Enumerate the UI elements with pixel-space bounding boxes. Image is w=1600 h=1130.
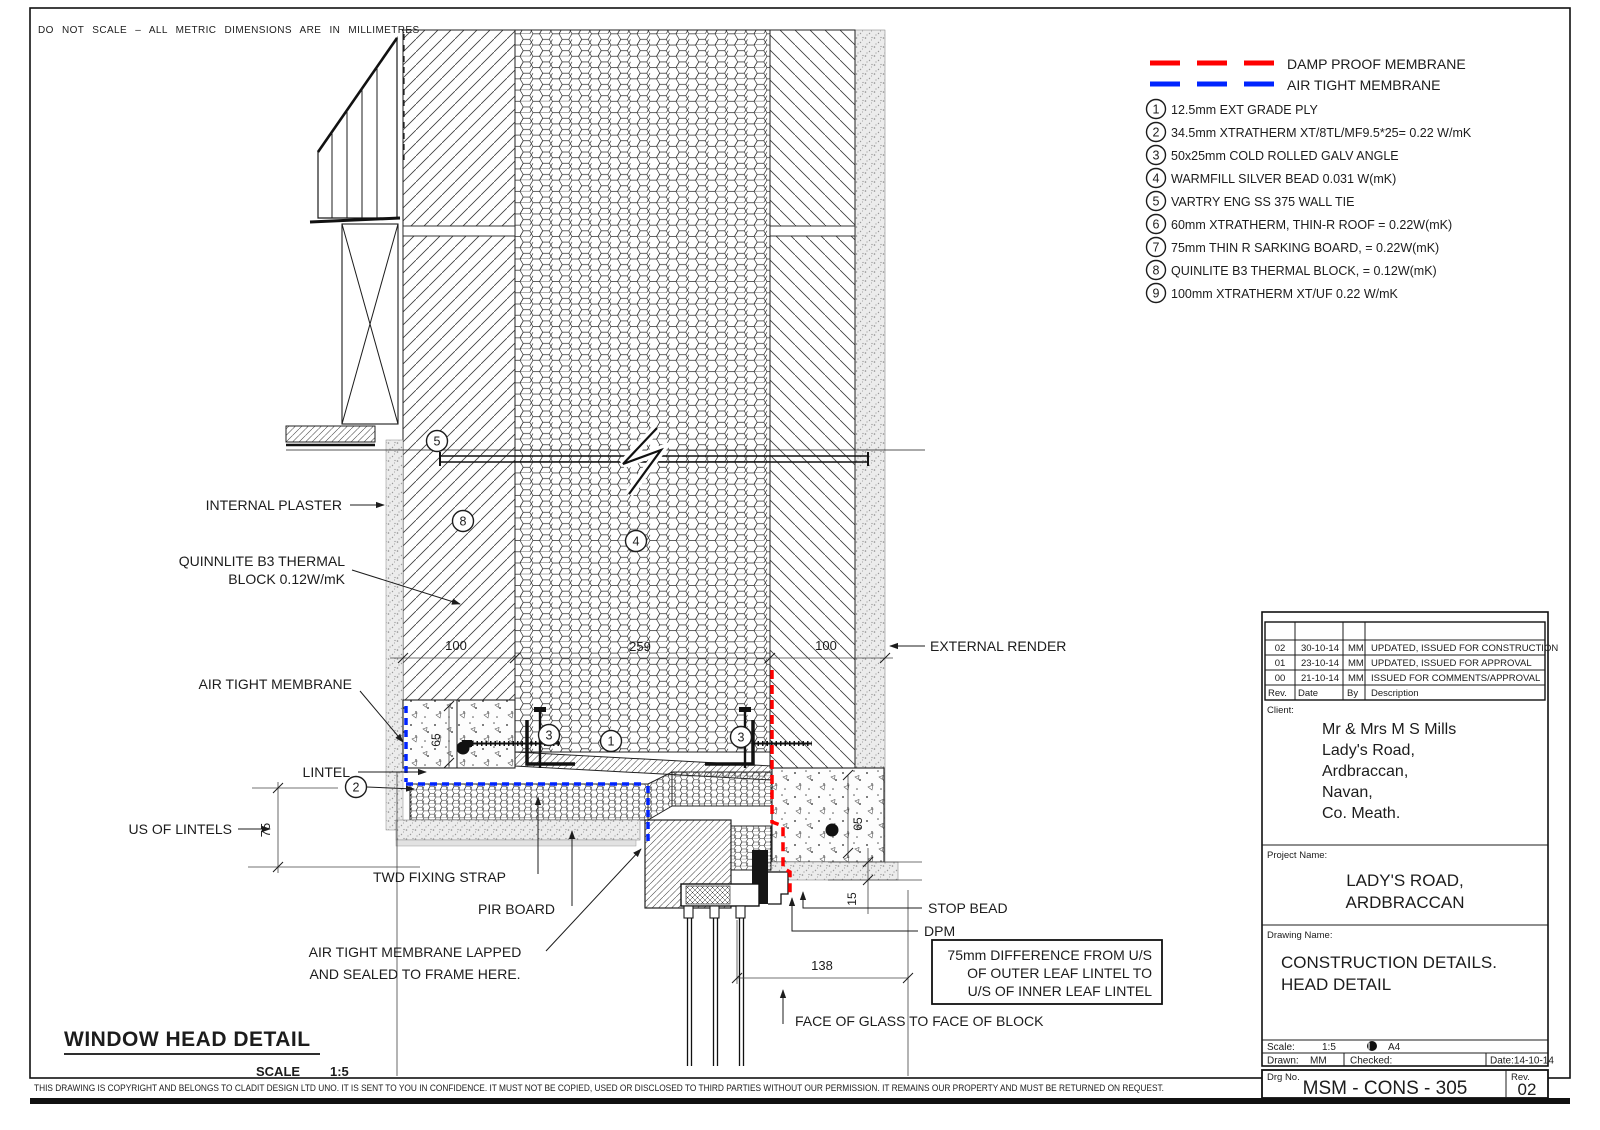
pir-board-strip [410, 784, 648, 820]
drawing-number-box: Drg No. MSM - CONS - 305 Rev. 02 [1262, 1070, 1548, 1099]
tb-scale-value: 1:5 [1322, 1042, 1336, 1053]
revision-table: 02 30-10-14 MM UPDATED, ISSUED FOR CONST… [1265, 622, 1558, 700]
svg-text:9: 9 [1153, 287, 1160, 301]
bolt-head [739, 707, 751, 712]
svg-text:MM: MM [1348, 658, 1364, 669]
note-item: 8 QUINLITE B3 THERMAL BLOCK, = 0.12W(mK) [1147, 261, 1437, 280]
pir-board-strip-outer [672, 772, 772, 806]
client-line: Co. Meath. [1322, 805, 1400, 822]
svg-text:21-10-14: 21-10-14 [1301, 673, 1339, 684]
drawing-name-label: Drawing Name: [1267, 930, 1332, 941]
client-line: Lady's Road, [1322, 742, 1415, 759]
svg-text:01: 01 [1275, 658, 1286, 669]
svg-text:4: 4 [633, 535, 640, 549]
title-block: 02 30-10-14 MM UPDATED, ISSUED FOR CONST… [1262, 612, 1558, 1099]
dim-cavity: 259 [629, 639, 651, 654]
inner-leaf-blockwork [403, 30, 515, 700]
svg-text:UPDATED, ISSUED FOR APPROVAL: UPDATED, ISSUED FOR APPROVAL [1371, 658, 1532, 669]
legend: DAMP PROOF MEMBRANE AIR TIGHT MEMBRANE [1150, 56, 1466, 93]
pir-step [648, 772, 672, 820]
svg-text:OF OUTER LEAF LINTEL TO: OF OUTER LEAF LINTEL TO [967, 965, 1152, 981]
svg-text:5: 5 [1153, 195, 1160, 209]
glazing-spacer [710, 906, 719, 918]
revision-row: 01 23-10-14 MM UPDATED, ISSUED FOR APPRO… [1275, 658, 1532, 669]
bolt-head [462, 740, 472, 747]
project-label: Project Name: [1267, 850, 1327, 861]
svg-text:8: 8 [460, 515, 467, 529]
dim-15: 15 [845, 892, 859, 906]
bolt-head [534, 707, 546, 712]
air-tight-membrane-label: AIR TIGHT MEMBRANE [198, 676, 352, 692]
svg-text:8: 8 [1153, 264, 1160, 278]
dim-75: 75 [258, 823, 273, 837]
svg-text:4: 4 [1153, 172, 1160, 186]
svg-text:23-10-14: 23-10-14 [1301, 658, 1339, 669]
svg-text:100mm XTRATHERM XT/UF 0.22 W/m: 100mm XTRATHERM XT/UF 0.22 W/mK [1171, 287, 1399, 301]
svg-text:00: 00 [1275, 673, 1286, 684]
dim-65-inner: 65 [429, 733, 443, 747]
triple-glazing [688, 918, 744, 1066]
svg-text:Description: Description [1371, 688, 1419, 699]
external-render-strip [855, 30, 885, 862]
date-value: Date:14-10-14 [1490, 1056, 1554, 1067]
rev-value: 02 [1518, 1080, 1537, 1099]
project-line: ARDBRACCAN [1345, 893, 1464, 912]
callout-5: 5 [427, 431, 448, 452]
ceiling-board [286, 426, 375, 442]
svg-text:75mm DIFFERENCE FROM U/S: 75mm DIFFERENCE FROM U/S [947, 947, 1152, 963]
glazing-spacer [684, 906, 693, 918]
drawing-name-line: HEAD DETAIL [1281, 975, 1391, 994]
stop-bead-label: STOP BEAD [928, 900, 1008, 916]
drawn-label: Drawn: [1267, 1056, 1299, 1067]
svg-text:By: By [1347, 688, 1358, 699]
skim-strip [396, 840, 636, 846]
pir-board-label: PIR BOARD [478, 901, 555, 917]
twd-fixing-strap-label: TWD FIXING STRAP [373, 869, 506, 885]
svg-text:2: 2 [353, 781, 360, 795]
outer-leaf-joint [770, 226, 855, 236]
sloping-roof-member [318, 38, 397, 218]
svg-text:MM: MM [1348, 643, 1364, 654]
inner-leaf-joint [403, 226, 515, 236]
note-item: 6 60mm XTRATHERM, THIN-R ROOF = 0.22W(mK… [1147, 215, 1453, 234]
svg-text:U/S OF INNER LEAF LINTEL: U/S OF INNER LEAF LINTEL [968, 983, 1153, 999]
frame-crosshatch [686, 886, 730, 904]
svg-text:3: 3 [1153, 149, 1160, 163]
callout-3b: 3 [731, 727, 752, 748]
svg-text:ISSUED FOR COMMENTS/APPROVAL: ISSUED FOR COMMENTS/APPROVAL [1371, 673, 1540, 684]
cad-drawing-sheet: DO NOT SCALE – ALL METRIC DIMENSIONS ARE… [0, 0, 1600, 1130]
svg-text:WARMFILL SILVER BEAD 0.031 W(m: WARMFILL SILVER BEAD 0.031 W(mK) [1171, 172, 1396, 186]
svg-text:7: 7 [1153, 241, 1160, 255]
materials-notes-list: 1 12.5mm EXT GRADE PLY 2 34.5mm XTRATHER… [1147, 100, 1472, 303]
callout-4: 4 [626, 531, 647, 552]
revision-row: 02 30-10-14 MM UPDATED, ISSUED FOR CONST… [1275, 643, 1559, 654]
note-item: 2 34.5mm XTRATHERM XT/8TL/MF9.5*25= 0.22… [1147, 123, 1472, 142]
dpm-legend-label: DAMP PROOF MEMBRANE [1287, 56, 1466, 72]
atm-legend-label: AIR TIGHT MEMBRANE [1287, 77, 1441, 93]
dim-outer-leaf: 100 [815, 638, 837, 653]
drawing-name-line: CONSTRUCTION DETAILS. [1281, 953, 1497, 972]
svg-text:VARTRY ENG SS 375 WALL TIE: VARTRY ENG SS 375 WALL TIE [1171, 195, 1354, 209]
roof-and-stud [310, 34, 404, 424]
svg-text:Rev.: Rev. [1268, 688, 1287, 699]
dim-inner-leaf: 100 [445, 638, 467, 653]
callout-2: 2 [346, 777, 415, 798]
internal-plaster-label: INTERNAL PLASTER [206, 497, 342, 513]
us-of-lintels-label: US OF LINTELS [129, 821, 232, 837]
note-item: 5 VARTRY ENG SS 375 WALL TIE [1147, 192, 1355, 211]
quinnlite-label-2: BLOCK 0.12W/mK [228, 571, 345, 587]
outer-leaf-blockwork [770, 30, 855, 768]
revision-row: 00 21-10-14 MM ISSUED FOR COMMENTS/APPRO… [1275, 673, 1541, 684]
client-line: Ardbraccan, [1322, 763, 1408, 780]
outer-leaf-lintel [772, 768, 884, 862]
note-item: 3 50x25mm COLD ROLLED GALV ANGLE [1147, 146, 1399, 165]
lintel-label: LINTEL [303, 764, 351, 780]
svg-text:34.5mm XTRATHERM XT/8TL/MF9.5*: 34.5mm XTRATHERM XT/8TL/MF9.5*25= 0.22 W… [1171, 126, 1472, 140]
client-line: Mr & Mrs M S Mills [1322, 721, 1456, 738]
dim-65-outer: 65 [851, 817, 865, 831]
svg-text:3: 3 [546, 729, 553, 743]
atm-lapped-label-2: AND SEALED TO FRAME HERE. [309, 966, 520, 982]
rebar-dot [826, 824, 839, 837]
scale-value: 1:5 [330, 1064, 349, 1079]
atm-lapped-label-1: AIR TIGHT MEMBRANE LAPPED [309, 944, 522, 960]
svg-text:QUINLITE B3 THERMAL BLOCK, = 0: QUINLITE B3 THERMAL BLOCK, = 0.12W(mK) [1171, 264, 1437, 278]
inner-leaf-lintel [403, 700, 515, 768]
svg-text:5: 5 [434, 435, 441, 449]
svg-text:6: 6 [1153, 218, 1160, 232]
scale-label: SCALE [256, 1064, 300, 1079]
window-head-assembly [645, 820, 788, 1066]
svg-text:75mm THIN R SARKING BOARD, = 0: 75mm THIN R SARKING BOARD, = 0.22W(mK) [1171, 241, 1439, 255]
plaster-soffit-strip [396, 820, 640, 840]
dpm-label: DPM [924, 923, 955, 939]
client-line: Navan, [1322, 784, 1373, 801]
callout-1: 1 [601, 731, 622, 752]
svg-text:02: 02 [1275, 643, 1286, 654]
svg-text:UPDATED, ISSUED FOR CONSTRUCTI: UPDATED, ISSUED FOR CONSTRUCTION [1371, 643, 1558, 654]
svg-text:MM: MM [1348, 673, 1364, 684]
dim-138: 138 [732, 890, 913, 1076]
tb-scale-label: Scale: [1267, 1042, 1295, 1053]
project-line: LADY'S ROAD, [1346, 871, 1464, 890]
drg-no-label: Drg No. [1267, 1072, 1300, 1083]
face-of-glass-label: FACE OF GLASS TO FACE OF BLOCK [795, 1013, 1044, 1029]
aluminium-drip [768, 872, 788, 904]
callout-3a: 3 [539, 725, 560, 746]
note-item: 9 100mm XTRATHERM XT/UF 0.22 W/mK [1147, 284, 1399, 303]
note-item: 4 WARMFILL SILVER BEAD 0.031 W(mK) [1147, 169, 1397, 188]
drawing-title: WINDOW HEAD DETAIL [64, 1028, 311, 1051]
window-head-detail-drawing: DO NOT SCALE – ALL METRIC DIMENSIONS ARE… [0, 0, 1600, 1130]
svg-text:1: 1 [1153, 103, 1160, 117]
svg-text:50x25mm COLD ROLLED GALV ANGLE: 50x25mm COLD ROLLED GALV ANGLE [1171, 149, 1399, 163]
drg-no-value: MSM - CONS - 305 [1303, 1078, 1468, 1099]
svg-text:1: 1 [608, 735, 615, 749]
callout-8: 8 [453, 511, 474, 532]
client-label: Client: [1267, 705, 1294, 716]
paper-size: A4 [1388, 1042, 1401, 1053]
quinnlite-label-1: QUINNLITE B3 THERMAL [179, 553, 345, 569]
external-render-label: EXTERNAL RENDER [930, 638, 1066, 654]
do-not-scale-note: DO NOT SCALE – ALL METRIC DIMENSIONS ARE… [38, 25, 420, 36]
note-item: 1 12.5mm EXT GRADE PLY [1147, 100, 1319, 119]
sheet-title: WINDOW HEAD DETAIL SCALE 1:5 [64, 1028, 349, 1079]
note-item: 7 75mm THIN R SARKING BOARD, = 0.22W(mK) [1147, 238, 1440, 257]
drawn-value: MM [1310, 1056, 1327, 1067]
glazing-spacer [736, 906, 745, 918]
svg-text:3: 3 [738, 731, 745, 745]
dim-138: 138 [811, 958, 833, 973]
copyright-note: THIS DRAWING IS COPYRIGHT AND BELONGS TO… [34, 1083, 1164, 1093]
checked-label: Checked: [1350, 1056, 1392, 1067]
svg-text:60mm XTRATHERM, THIN-R ROOF =: 60mm XTRATHERM, THIN-R ROOF = 0.22W(mK) [1171, 218, 1452, 232]
svg-text:12.5mm EXT GRADE PLY: 12.5mm EXT GRADE PLY [1171, 103, 1318, 117]
svg-text:Date: Date [1298, 688, 1318, 699]
svg-text:2: 2 [1153, 126, 1160, 140]
difference-note-box: 75mm DIFFERENCE FROM U/S OF OUTER LEAF L… [932, 940, 1162, 1004]
svg-text:30-10-14: 30-10-14 [1301, 643, 1339, 654]
